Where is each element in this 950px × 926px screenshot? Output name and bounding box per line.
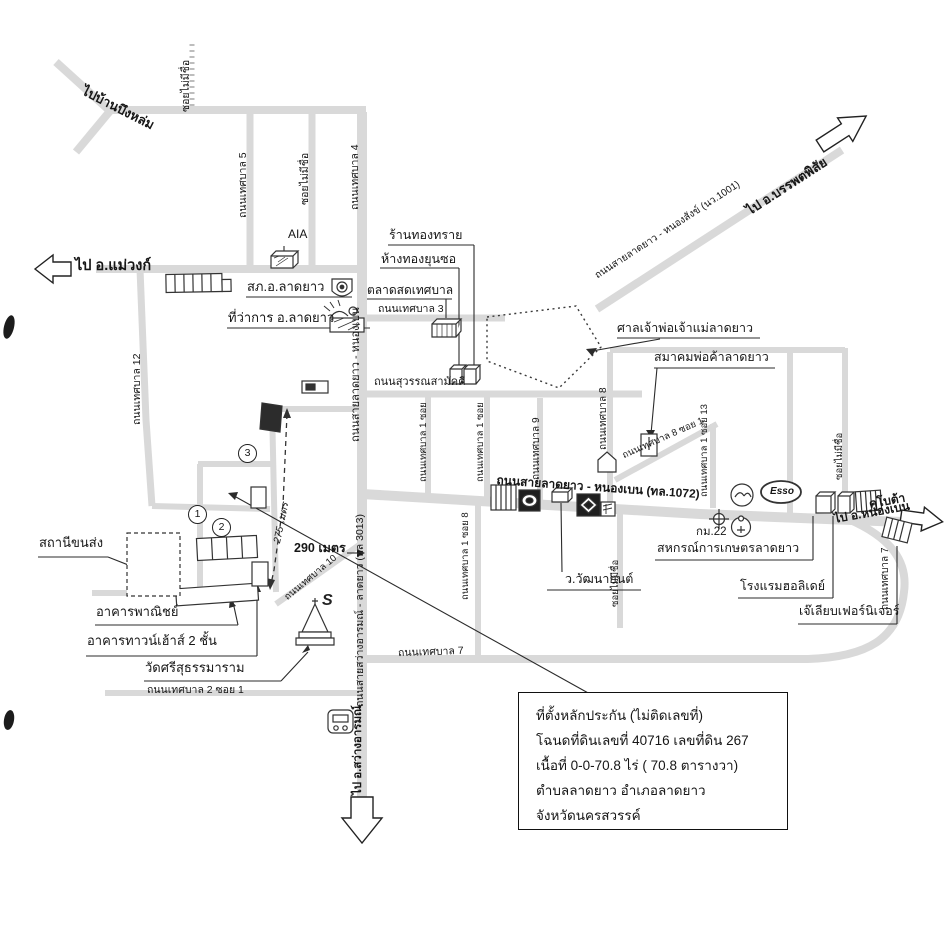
road-tessaban-2-soi-1: ถนนเทศบาล 2 ซอย 1	[147, 684, 244, 696]
direction-mae-wong: ไป อ.แม่วงก์	[75, 258, 151, 275]
place-merchant-assoc: สมาคมพ่อค้าลาดยาว	[654, 350, 769, 364]
arrow-northeast-icon	[812, 104, 873, 157]
info-line-subdistrict: ตำบลลาดยาว อำเภอลาดยาว	[536, 778, 787, 803]
road-tessaban-9: ถนนเทศบาล 9	[531, 417, 543, 480]
place-bus-terminal: สถานีขนส่ง	[39, 536, 103, 551]
esso-label: Esso	[763, 486, 801, 497]
info-line-province: จังหวัดนครสวรรค์	[536, 803, 787, 828]
arrow-south-icon	[342, 797, 382, 843]
suzuki-logo-icon: S	[322, 592, 333, 610]
road-tessaban-7-label: ถนนเทศบาล 7	[398, 645, 464, 659]
road-tessaban-1-soi-b: ถนนเทศบาล 1 ซอย	[476, 402, 487, 482]
four-unit-row-icon	[196, 535, 257, 560]
place-furniture-shop: เจ๊เลียบเฟอร์นิเจอร์	[799, 604, 900, 618]
plot-number-3: 3	[238, 444, 257, 463]
road-tessaban-12: ถนนเทศบาล 12	[131, 354, 143, 425]
road-tessaban-8: ถนนเทศบาล 8	[598, 387, 610, 450]
road-no-name-soi-east: ซอยไม่มีชื่อ	[835, 433, 846, 480]
place-commercial-building: อาคารพาณิชย์	[96, 605, 178, 620]
info-line-title: ที่ตั้งหลักประกัน (ไม่ติดเลขที่)	[536, 703, 787, 728]
plot-number-1: 1	[188, 505, 207, 524]
place-temple: วัดศรีสุธรรมาราม	[145, 661, 245, 676]
house-icon	[598, 452, 616, 472]
road-tessaban-5: ถนนเทศบาล 5	[237, 152, 249, 218]
market-building-icon	[432, 319, 461, 337]
shophouse-row-icon	[166, 273, 231, 292]
collateral-info-box: ที่ตั้งหลักประกัน (ไม่ติดเลขที่) โฉนดที่…	[518, 692, 788, 830]
place-coop: สหกรณ์การเกษตรลาดยาว	[657, 541, 799, 555]
info-line-deed: โฉนดที่ดินเลขที่ 40716 เลขที่ดิน 267	[536, 728, 787, 753]
place-watthana-garage: ว.วัฒนายนต์	[565, 572, 633, 586]
place-holiday-hotel: โรงแรมฮอลิเดย์	[740, 579, 825, 593]
marker-aia: AIA	[288, 228, 307, 242]
small-building-icon	[302, 381, 328, 393]
distance-290m: 290 เมตร	[294, 541, 346, 555]
road-sawang-ladyao: ถนนสายสว่างอารมณ์ - ลาดยาว (ทล 3013)	[354, 514, 366, 707]
leader-lines	[38, 245, 897, 694]
aia-building-icon	[271, 251, 298, 268]
info-line-area: เนื้อที่ 0-0-70.8 ไร่ ( 70.8 ตารางวา)	[536, 753, 787, 778]
place-fresh-market: ตลาดสดเทศบาล	[367, 284, 453, 298]
diamond-logo-icon	[577, 494, 600, 516]
road-no-name-soi-nw: ซอยไม่มีชื่อ	[180, 60, 192, 112]
road-tessaban-1-soi-8: ถนนเทศบาล 1 ซอย 8	[461, 512, 472, 600]
place-district-office: ที่ว่าการ อ.ลาดยาว	[228, 311, 334, 326]
place-police-station: สภ.อ.ลาดยาว	[247, 280, 324, 295]
road-no-name-soi-mid: ซอยไม่มีชื่อ	[299, 153, 311, 205]
coop-logo-icon	[519, 490, 540, 511]
scanned-location-map: ไป อ.แม่วงก์ ไป อ.บรรพตพิสัย ไป อ.หนองเบ…	[0, 0, 950, 926]
bird-logo-icon	[731, 484, 753, 506]
townhouse-icon	[252, 562, 268, 586]
place-townhouse: อาคารทาวน์เฮ้าส์ 2 ชั้น	[87, 634, 217, 649]
place-gold-shop-2: ห้างทองยุนซอ	[381, 252, 456, 266]
road-ladyao-nongben-north: ถนนสายลาดยาว - หนองเบน	[350, 307, 363, 442]
direction-sawang-arom: ไป อ.สว่างอารมณ์	[352, 705, 365, 795]
road-tessaban-1-soi-a: ถนนเทศบาล 1 ซอย	[419, 402, 430, 482]
scan-artifacts	[1, 314, 17, 731]
arrow-west-icon	[35, 255, 71, 283]
bus-icon	[328, 710, 353, 733]
road-tessaban-3: ถนนเทศบาล 3	[378, 303, 444, 315]
bus-terminal-area-icon	[127, 533, 180, 596]
place-shrine: ศาลเจ้าพ่อเจ้าแม่ลาดยาว	[617, 321, 753, 335]
police-badge-icon	[332, 279, 352, 296]
collateral-parcel-icon	[251, 487, 266, 508]
road-suwan-samakkhi: ถนนสุวรรณสามัคคี	[374, 376, 465, 389]
plot-number-2: 2	[212, 518, 231, 537]
dark-building-icon	[260, 403, 282, 432]
shop-sign-icon	[601, 502, 615, 516]
commercial-building-icon	[176, 583, 259, 606]
road-tessaban-4: ถนนเทศบาล 4	[349, 144, 361, 210]
road-tessaban-7-east: ถนนเทศบาล 7	[880, 547, 892, 610]
place-gold-shop-1: ร้านทองทราย	[389, 228, 462, 242]
marker-km22: กม.22	[696, 526, 727, 539]
